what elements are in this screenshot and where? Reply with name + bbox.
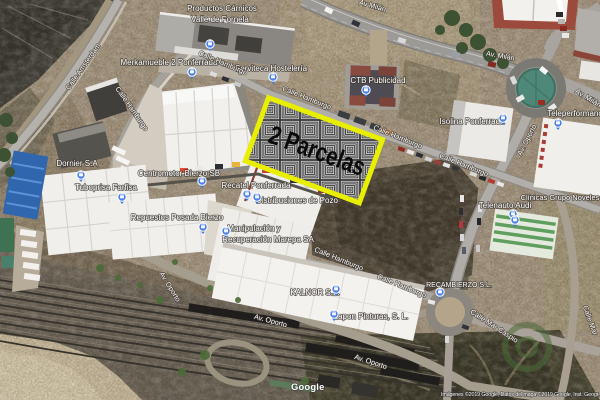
svg-text:Valle de Fornela: Valle de Fornela (191, 15, 249, 24)
svg-text:Clínicas Grupo Noveles: Clínicas Grupo Noveles (521, 193, 600, 202)
svg-text:CTB Publicidad: CTB Publicidad (350, 76, 405, 85)
svg-text:Imágenes ©2019 Google, Datos d: Imágenes ©2019 Google, Datos del mapa ©2… (441, 391, 600, 398)
svg-text:RECAMBIERZO S.L.: RECAMBIERZO S.L. (426, 282, 492, 289)
svg-text:Recatel Ponferrada: Recatel Ponferrada (222, 181, 291, 190)
svg-text:Merkamueble 2 Ponferrada: Merkamueble 2 Ponferrada (121, 58, 218, 67)
svg-text:Google: Google (291, 381, 325, 392)
svg-text:Teleperformance: Teleperformance (547, 109, 600, 118)
svg-text:Dornier S.A: Dornier S.A (56, 159, 98, 168)
svg-text:Centromotor Bierzo SB: Centromotor Bierzo SB (138, 169, 220, 178)
svg-text:Productos Cárnicos: Productos Cárnicos (187, 4, 257, 13)
svg-text:Manipulación y: Manipulación y (227, 224, 280, 233)
svg-text:Lapon Pinturas, S. L.: Lapon Pinturas, S. L. (334, 312, 409, 321)
svg-text:Repuestos Posada Bierzo: Repuestos Posada Bierzo (131, 213, 224, 222)
svg-text:Recuperación Marepa SA: Recuperación Marepa SA (222, 235, 314, 244)
svg-text:Telenauto Audi: Telenauto Audi (479, 201, 532, 210)
svg-text:Tuboprisa Farfisa: Tuboprisa Farfisa (75, 183, 138, 192)
svg-text:Distribuciones de Pozo: Distribuciones de Pozo (256, 196, 338, 205)
svg-text:Isolina Ponferrada: Isolina Ponferrada (440, 117, 505, 126)
